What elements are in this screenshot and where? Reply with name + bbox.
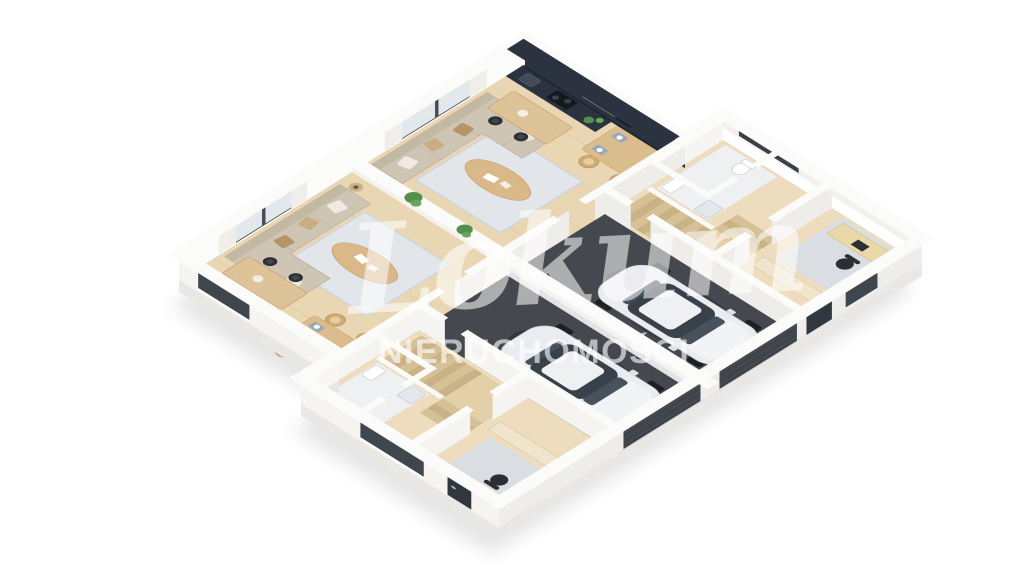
floor-plan-stage: Lokum NIERUCHOMOŚCI [0, 0, 1024, 576]
floorplan-render [0, 0, 1024, 576]
